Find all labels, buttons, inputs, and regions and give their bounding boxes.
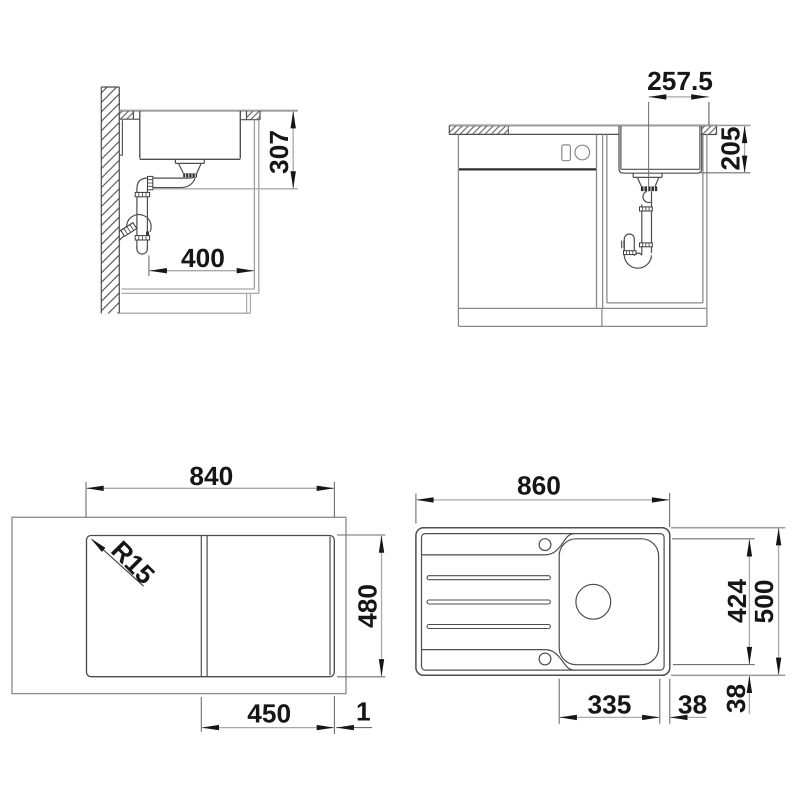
svg-text:38: 38 xyxy=(721,684,751,713)
svg-text:38: 38 xyxy=(678,689,707,719)
svg-text:307: 307 xyxy=(264,130,294,174)
svg-text:424: 424 xyxy=(722,579,752,623)
svg-text:860: 860 xyxy=(517,470,561,500)
svg-text:840: 840 xyxy=(189,461,233,491)
svg-text:205: 205 xyxy=(716,127,746,171)
svg-text:400: 400 xyxy=(181,243,225,273)
svg-text:480: 480 xyxy=(353,584,383,628)
svg-text:500: 500 xyxy=(749,580,779,624)
svg-text:335: 335 xyxy=(588,689,632,719)
svg-text:450: 450 xyxy=(247,699,291,729)
svg-text:257.5: 257.5 xyxy=(647,66,713,96)
svg-text:1: 1 xyxy=(356,697,371,727)
